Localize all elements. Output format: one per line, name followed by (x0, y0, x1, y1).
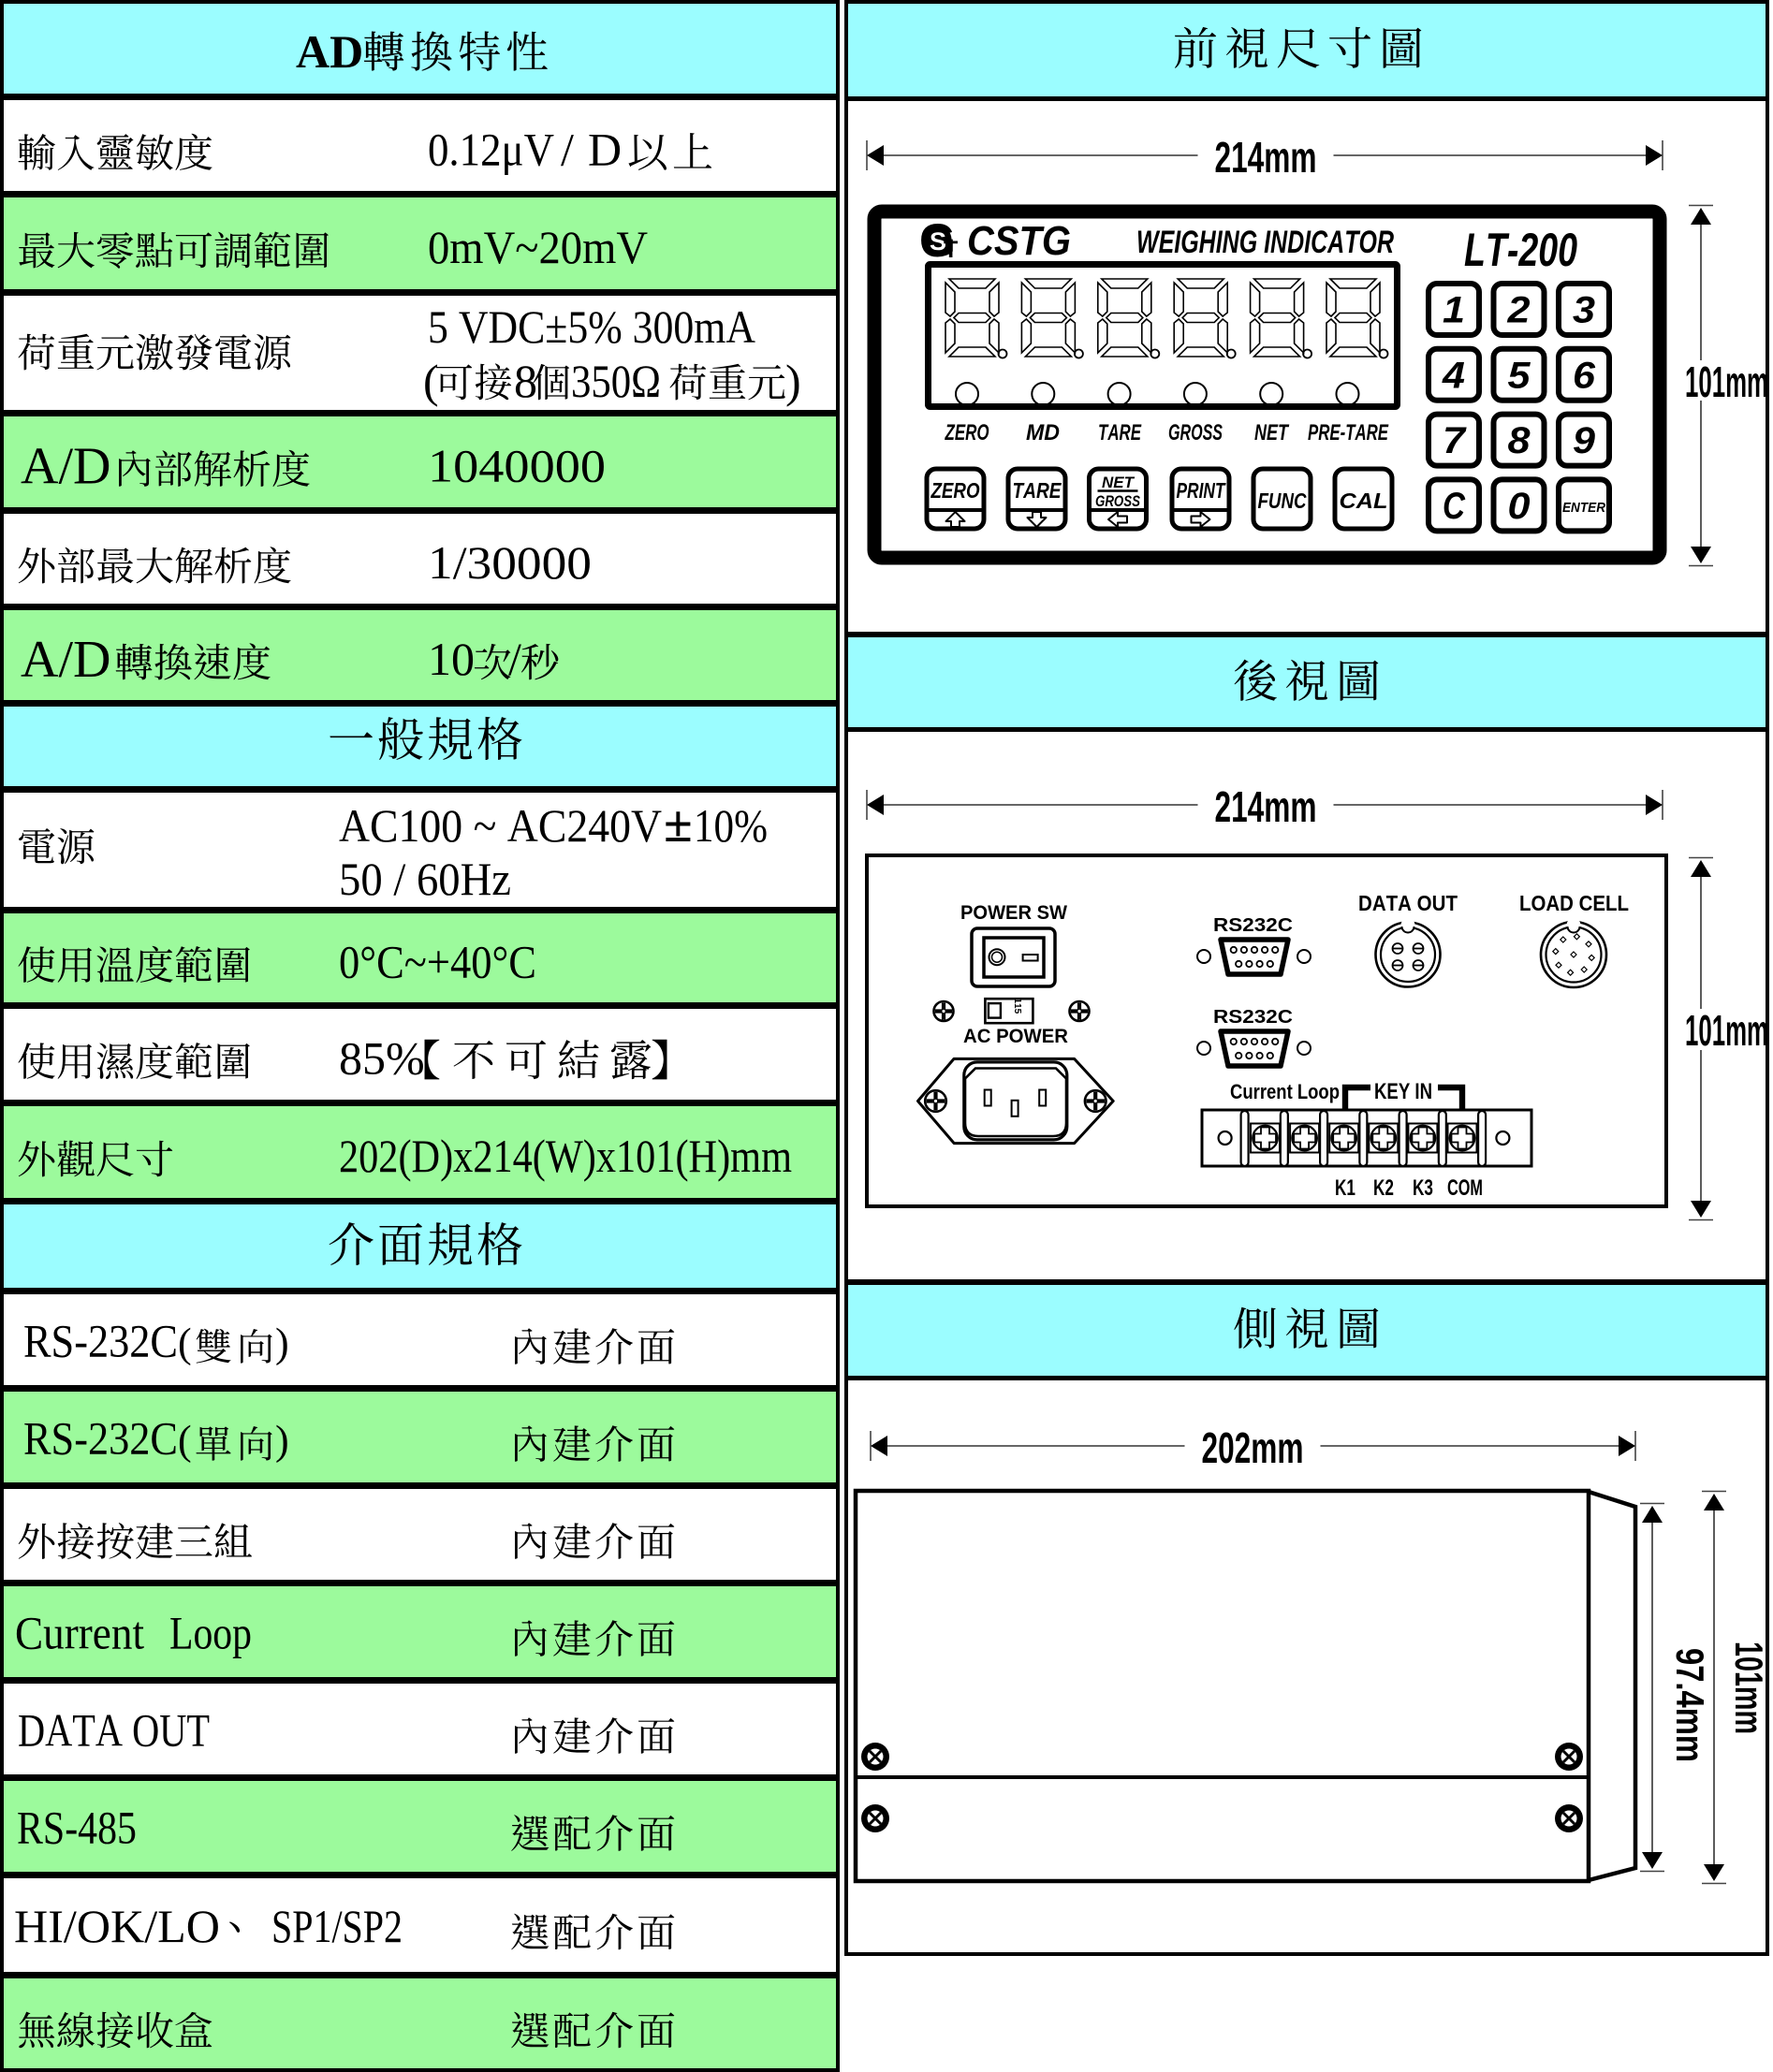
svg-text:1040000: 1040000 (428, 440, 606, 492)
svg-text:RS-232C: RS-232C (23, 1412, 178, 1465)
svg-text:202(D)x214(W)x101(H)mm: 202(D)x214(W)x101(H)mm (339, 1130, 792, 1182)
svg-text:A/D: A/D (21, 438, 110, 496)
svg-text:T: T (944, 237, 958, 263)
svg-text:): ) (785, 355, 801, 407)
svg-text:AC POWER: AC POWER (963, 1026, 1068, 1047)
svg-text:TARE: TARE (1013, 478, 1062, 503)
svg-text:K2: K2 (1373, 1175, 1394, 1201)
svg-text:POWER SW: POWER SW (960, 902, 1067, 924)
svg-text:HI/OK/LO: HI/OK/LO (14, 1900, 220, 1952)
svg-text:0°C~+40°C: 0°C~+40°C (339, 936, 536, 988)
svg-text:0mV~20mV: 0mV~20mV (428, 221, 648, 273)
svg-text:PRINT: PRINT (1177, 478, 1226, 503)
svg-text:0.12μV: 0.12μV (428, 124, 554, 176)
svg-text:SP1/SP2: SP1/SP2 (271, 1900, 403, 1952)
svg-text:1/30000: 1/30000 (428, 536, 592, 589)
svg-text:TARE: TARE (1098, 420, 1142, 445)
svg-text:2: 2 (1506, 290, 1530, 331)
svg-text:RS-485: RS-485 (17, 1802, 137, 1854)
svg-text:8: 8 (514, 355, 537, 407)
svg-text:ZERO: ZERO (945, 420, 989, 445)
svg-text:5 VDC±5% 300mA: 5 VDC±5% 300mA (428, 300, 755, 353)
svg-text:RS232C: RS232C (1213, 1007, 1293, 1028)
svg-text:RS232C: RS232C (1213, 915, 1293, 936)
svg-text:Current: Current (15, 1607, 144, 1659)
svg-text:101mm: 101mm (1685, 357, 1768, 406)
svg-text:9: 9 (1573, 420, 1596, 461)
svg-text:350Ω: 350Ω (571, 355, 661, 407)
svg-text:A/D: A/D (21, 631, 110, 689)
svg-text:ENTER: ENTER (1562, 500, 1605, 516)
svg-text:85%: 85% (339, 1032, 425, 1085)
svg-text:202mm: 202mm (1202, 1423, 1304, 1472)
svg-text:0: 0 (1508, 486, 1531, 527)
svg-text:/: / (561, 124, 574, 176)
svg-text:10%: 10% (694, 799, 768, 852)
svg-text:97.4mm: 97.4mm (1668, 1648, 1712, 1762)
svg-text:MD: MD (1026, 420, 1060, 445)
svg-text:(: ( (178, 1321, 192, 1366)
svg-text:±: ± (664, 795, 693, 854)
svg-text:NET: NET (1102, 474, 1136, 491)
svg-text:): ) (275, 1321, 289, 1366)
svg-text:KEY IN: KEY IN (1374, 1079, 1432, 1104)
svg-text:101mm: 101mm (1727, 1642, 1771, 1734)
svg-text:3: 3 (1573, 290, 1595, 331)
svg-text:AD: AD (296, 25, 363, 78)
svg-text:6: 6 (1573, 355, 1596, 396)
svg-text:10: 10 (428, 633, 475, 685)
svg-text:D: D (588, 124, 622, 176)
svg-text:PRE-TARE: PRE-TARE (1308, 420, 1389, 445)
svg-text:K1: K1 (1335, 1175, 1355, 1201)
svg-text:): ) (275, 1418, 289, 1464)
svg-text:NET: NET (1254, 420, 1290, 445)
svg-text:115: 115 (1012, 999, 1022, 1014)
svg-text:214mm: 214mm (1215, 782, 1317, 831)
svg-text:COM: COM (1447, 1175, 1483, 1201)
svg-text:LOAD CELL: LOAD CELL (1519, 891, 1629, 915)
svg-text:Current Loop: Current Loop (1230, 1080, 1340, 1103)
svg-text:214mm: 214mm (1215, 133, 1317, 182)
svg-text:GROSS: GROSS (1095, 492, 1141, 510)
svg-text:101mm: 101mm (1685, 1006, 1768, 1055)
svg-text:DATA OUT: DATA OUT (1358, 891, 1458, 915)
svg-text:CSTG: CSTG (967, 218, 1071, 264)
svg-text:50 / 60Hz: 50 / 60Hz (339, 853, 511, 905)
svg-text:1: 1 (1443, 290, 1465, 331)
svg-text:WEIGHING INDICATOR: WEIGHING INDICATOR (1136, 225, 1394, 260)
svg-text:/: / (508, 633, 521, 685)
svg-text:RS-232C: RS-232C (23, 1315, 178, 1367)
svg-text:CAL: CAL (1340, 489, 1388, 513)
svg-text:7: 7 (1443, 420, 1467, 461)
svg-text:ZERO: ZERO (930, 478, 980, 503)
svg-text:5: 5 (1508, 355, 1531, 396)
svg-text:C: C (1443, 486, 1466, 527)
svg-text:4: 4 (1442, 355, 1465, 396)
svg-text:AC100 ~ AC240V: AC100 ~ AC240V (339, 799, 662, 852)
svg-text:(: ( (178, 1418, 192, 1464)
svg-text:DATA OUT: DATA OUT (18, 1704, 210, 1757)
svg-text:Loop: Loop (169, 1607, 252, 1659)
svg-text:8: 8 (1508, 420, 1531, 461)
svg-text:(: ( (423, 355, 439, 407)
svg-text:GROSS: GROSS (1168, 420, 1223, 445)
svg-text:FUNC: FUNC (1258, 489, 1307, 513)
svg-text:LT-200: LT-200 (1464, 224, 1577, 276)
svg-text:K3: K3 (1413, 1175, 1433, 1201)
